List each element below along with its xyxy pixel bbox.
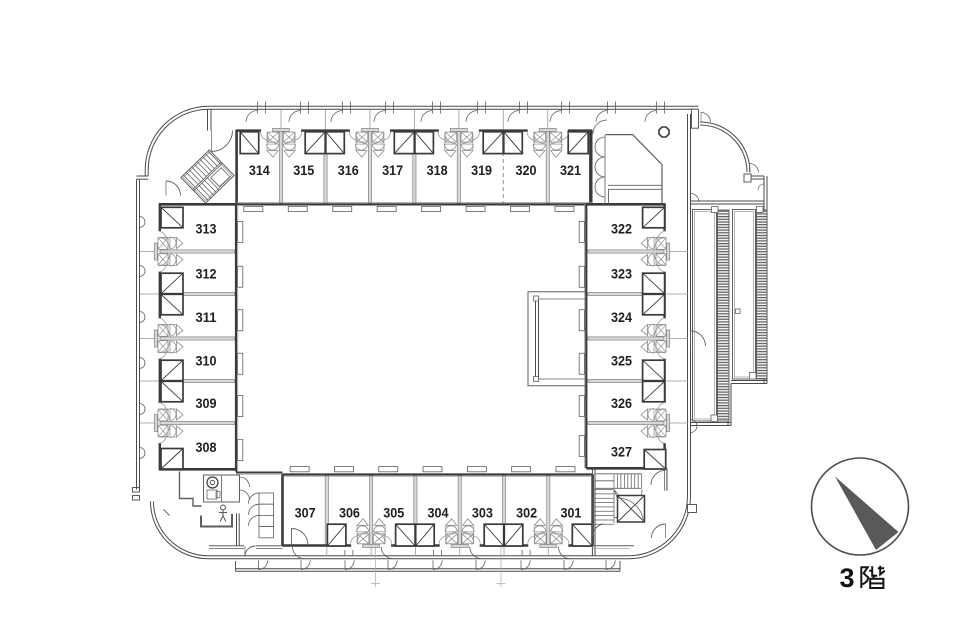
svg-text:318: 318 — [427, 163, 449, 178]
svg-text:311: 311 — [196, 310, 218, 325]
svg-text:306: 306 — [339, 506, 360, 521]
svg-text:323: 323 — [611, 267, 632, 282]
svg-text:303: 303 — [472, 506, 493, 521]
svg-text:313: 313 — [196, 222, 217, 237]
svg-text:322: 322 — [611, 222, 632, 237]
svg-text:315: 315 — [293, 163, 315, 178]
svg-text:302: 302 — [516, 506, 537, 521]
svg-text:310: 310 — [196, 354, 217, 369]
svg-text:327: 327 — [611, 444, 632, 459]
svg-text:317: 317 — [382, 163, 403, 178]
svg-text:3: 3 — [839, 563, 854, 593]
svg-text:301: 301 — [560, 506, 582, 521]
svg-text:312: 312 — [196, 267, 217, 282]
svg-text:321: 321 — [560, 163, 582, 178]
svg-text:320: 320 — [516, 163, 537, 178]
svg-text:325: 325 — [611, 354, 633, 369]
svg-text:308: 308 — [196, 440, 218, 455]
svg-text:316: 316 — [338, 163, 359, 178]
svg-text:319: 319 — [471, 163, 492, 178]
svg-text:307: 307 — [295, 506, 316, 521]
svg-text:305: 305 — [383, 506, 405, 521]
svg-text:324: 324 — [611, 310, 633, 325]
svg-text:304: 304 — [428, 506, 450, 521]
svg-text:309: 309 — [196, 396, 217, 411]
svg-text:314: 314 — [249, 163, 271, 178]
svg-text:326: 326 — [611, 396, 632, 411]
